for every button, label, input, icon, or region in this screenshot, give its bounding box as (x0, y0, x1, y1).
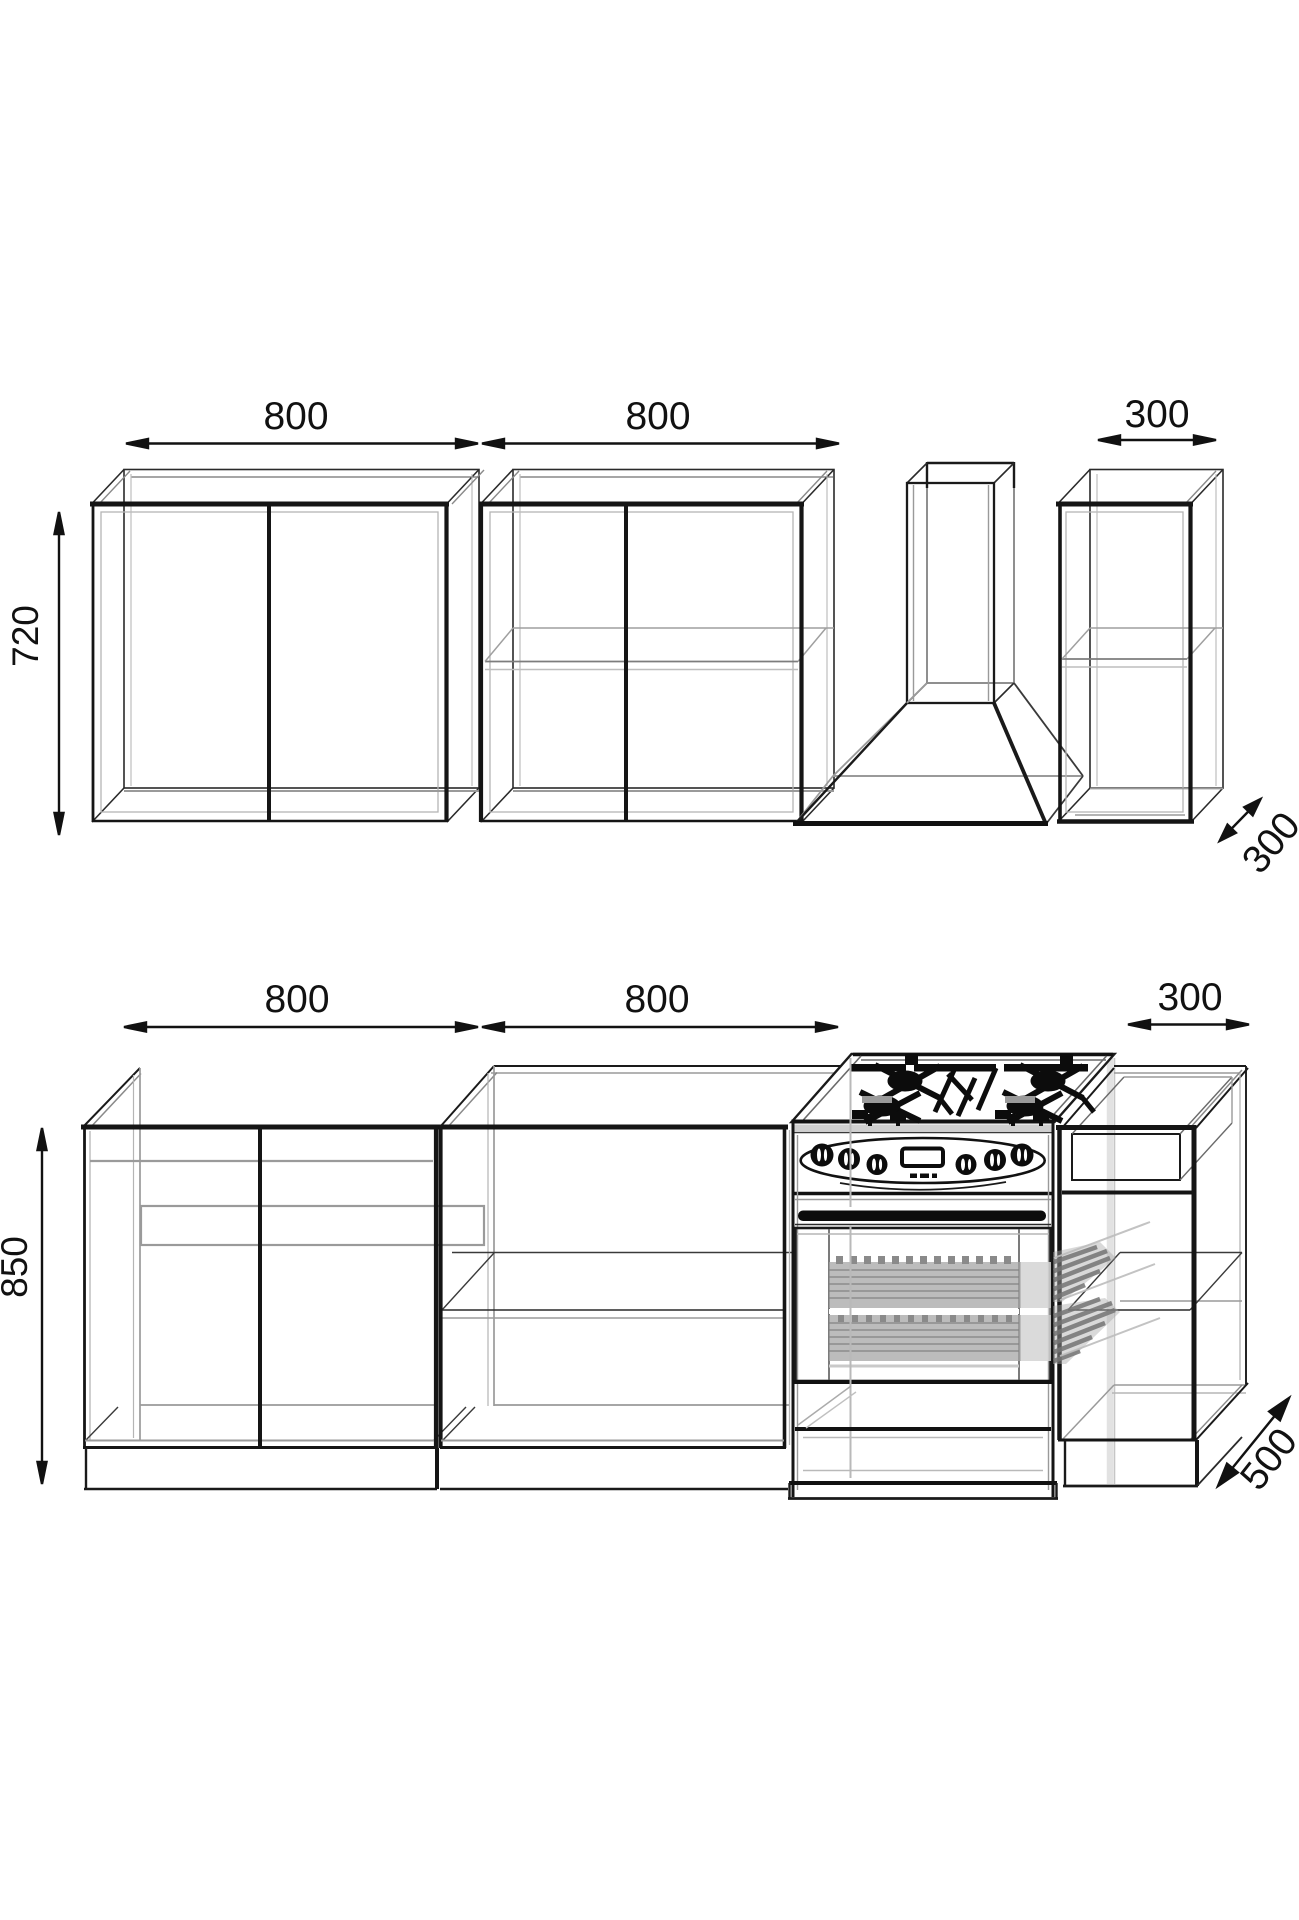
svg-text:720: 720 (5, 605, 46, 667)
svg-text:300: 300 (1157, 976, 1222, 1019)
svg-text:800: 800 (264, 978, 329, 1021)
svg-text:800: 800 (263, 395, 328, 438)
svg-text:300: 300 (1124, 393, 1189, 436)
svg-text:850: 850 (0, 1236, 35, 1298)
svg-text:800: 800 (625, 395, 690, 438)
svg-text:800: 800 (624, 978, 689, 1021)
